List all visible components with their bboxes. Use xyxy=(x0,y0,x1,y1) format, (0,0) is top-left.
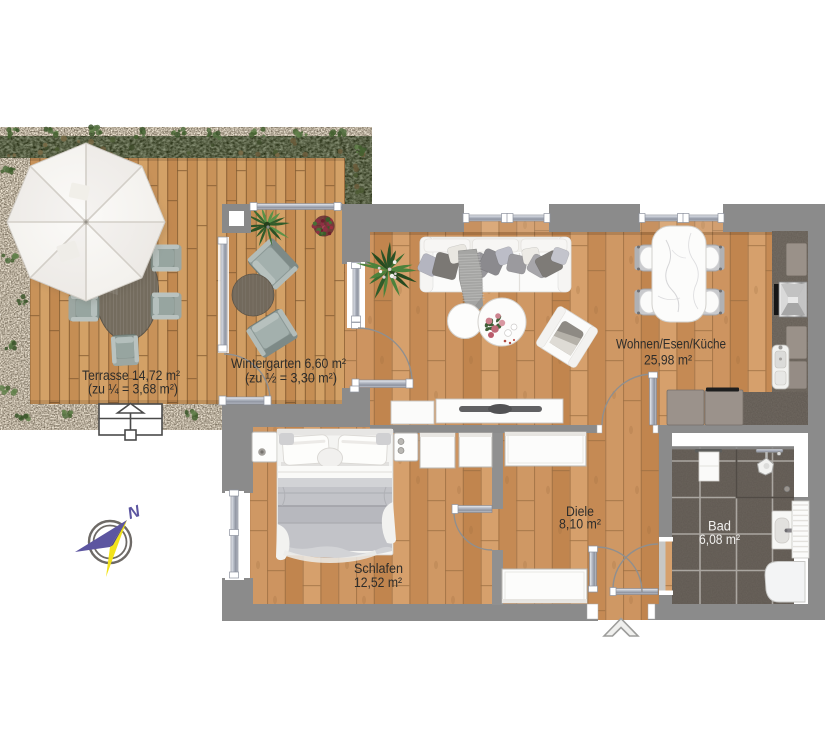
svg-text:(zu ½ = 3,30 m²): (zu ½ = 3,30 m²) xyxy=(245,371,337,386)
svg-text:Schlafen: Schlafen xyxy=(354,561,403,576)
svg-text:(zu ¼ = 3,68 m²): (zu ¼ = 3,68 m²) xyxy=(88,382,178,397)
svg-text:Wintergarten 6,60 m²: Wintergarten 6,60 m² xyxy=(231,356,346,371)
svg-text:8,10 m²: 8,10 m² xyxy=(559,517,601,532)
svg-text:25,98 m²: 25,98 m² xyxy=(644,353,692,368)
svg-text:12,52 m²: 12,52 m² xyxy=(354,575,402,590)
svg-text:Wohnen/Esen/Küche: Wohnen/Esen/Küche xyxy=(616,337,726,352)
svg-text:6,08 m²: 6,08 m² xyxy=(699,532,740,547)
